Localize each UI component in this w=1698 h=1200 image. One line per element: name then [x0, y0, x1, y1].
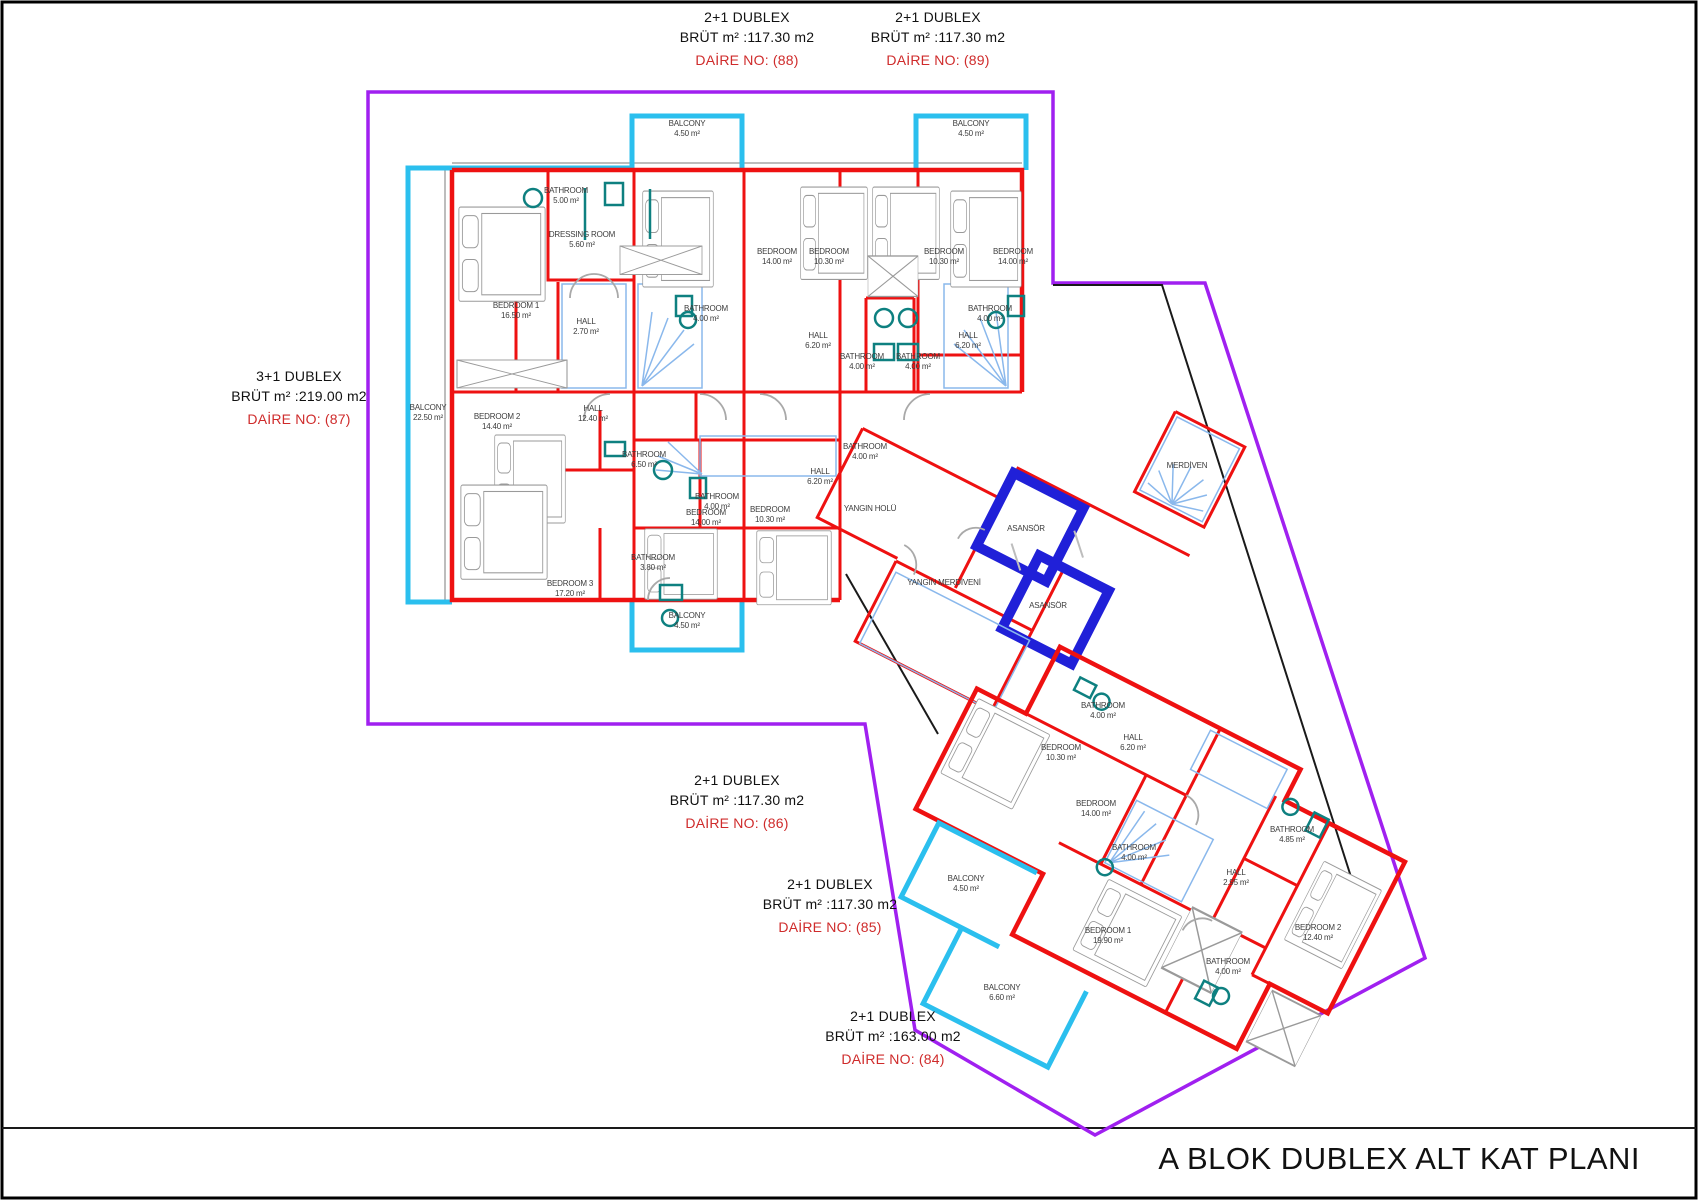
staircases-upper: [562, 284, 1008, 476]
room-label: HALL12.40 m²: [578, 404, 609, 423]
room-label: MERDİVEN: [1167, 461, 1208, 470]
room-label: BEDROOM14.00 m²: [993, 247, 1033, 266]
room-label: BATHROOM5.00 m²: [544, 186, 589, 205]
apartment-type: 2+1 DUBLEX: [577, 770, 897, 790]
room-label: BEDROOM 317.20 m²: [547, 579, 594, 598]
room-label: BEDROOM14.00 m²: [757, 247, 797, 266]
apartment-label-84: 2+1 DUBLEX BRÜT m² :163.00 m2 DAİRE NO: …: [733, 1006, 1053, 1069]
room-label: BALCONY4.50 m²: [669, 119, 707, 138]
upper-wing: [452, 170, 1024, 626]
room-label: BATHROOM4.00 m²: [840, 352, 885, 371]
room-label: BEDROOM14.00 m²: [1076, 799, 1116, 818]
room-label: HALL2.95 m²: [1223, 868, 1249, 887]
apartment-number: DAİRE NO: (89): [778, 50, 1098, 70]
apartment-label-86: 2+1 DUBLEX BRÜT m² :117.30 m2 DAİRE NO: …: [577, 770, 897, 833]
room-label: BEDROOM 214.40 m²: [474, 412, 521, 431]
room-label: BATHROOM4.00 m²: [968, 304, 1013, 323]
room-label: BEDROOM10.30 m²: [1041, 743, 1081, 762]
bed: [941, 698, 1051, 809]
room-label: BATHROOM4.00 m²: [1081, 701, 1126, 720]
apartment-area: BRÜT m² :117.30 m2: [577, 790, 897, 810]
wardrobe: [868, 256, 918, 297]
apartment-area: BRÜT m² :219.00 m2: [139, 386, 459, 406]
drawing-sheet: BALCONY22.50 m²BATHROOM5.00 m²DRESSING R…: [0, 0, 1698, 1200]
room-label: BEDROOM10.30 m²: [924, 247, 964, 266]
room-label: ASANSÖR: [1029, 601, 1067, 610]
room-label: ASANSÖR: [1007, 524, 1045, 533]
apartment-label-87: 3+1 DUBLEX BRÜT m² :219.00 m2 DAİRE NO: …: [139, 366, 459, 429]
room-label: DRESSING ROOM5.60 m²: [549, 230, 616, 249]
apartment-type: 2+1 DUBLEX: [670, 874, 990, 894]
room-label: BEDROOM14.00 m²: [686, 508, 726, 527]
apartment-type: 3+1 DUBLEX: [139, 366, 459, 386]
wardrobe: [620, 246, 702, 275]
bed: [951, 191, 1022, 287]
room-label: BEDROOM 116.50 m²: [493, 301, 540, 320]
room-label: BATHROOM4.85 m²: [1270, 825, 1315, 844]
bed: [1284, 861, 1382, 969]
apartment-type: 2+1 DUBLEX: [778, 7, 1098, 27]
room-label: HALL6.20 m²: [955, 331, 981, 350]
bed: [461, 485, 547, 579]
room-label: BEDROOM10.30 m²: [809, 247, 849, 266]
room-label: BALCONY6.60 m²: [984, 983, 1022, 1002]
room-label: BATHROOM6.50 m²: [622, 450, 667, 469]
room-label: BALCONY4.50 m²: [669, 611, 707, 630]
apartment-number: DAİRE NO: (85): [670, 917, 990, 937]
room-label: HALL6.20 m²: [1120, 733, 1146, 752]
bed: [757, 531, 831, 605]
apartment-area: BRÜT m² :117.30 m2: [778, 27, 1098, 47]
room-label: YANGIN HOLÜ: [844, 504, 897, 513]
room-label: HALL6.20 m²: [807, 467, 833, 486]
apartment-label-89: 2+1 DUBLEX BRÜT m² :117.30 m2 DAİRE NO: …: [778, 7, 1098, 70]
apartment-area: BRÜT m² :117.30 m2: [670, 894, 990, 914]
apartment-label-85: 2+1 DUBLEX BRÜT m² :117.30 m2 DAİRE NO: …: [670, 874, 990, 937]
apartment-type: 2+1 DUBLEX: [733, 1006, 1053, 1026]
room-label: HALL6.20 m²: [805, 331, 831, 350]
sheet-title: A BLOK DUBLEX ALT KAT PLANI: [1158, 1141, 1640, 1177]
room-label: BATHROOM4.00 m²: [896, 352, 941, 371]
room-label: YANGIN MERDİVENİ: [907, 578, 981, 587]
apartment-number: DAİRE NO: (86): [577, 813, 897, 833]
wardrobe: [457, 360, 567, 388]
room-label: BALCONY4.50 m²: [953, 119, 991, 138]
bed: [459, 207, 545, 301]
room-label: HALL2.70 m²: [573, 317, 599, 336]
apartment-number: DAİRE NO: (87): [139, 409, 459, 429]
apartment-number: DAİRE NO: (84): [733, 1049, 1053, 1069]
apartment-area: BRÜT m² :163.00 m2: [733, 1026, 1053, 1046]
room-label: BEDROOM10.30 m²: [750, 505, 790, 524]
